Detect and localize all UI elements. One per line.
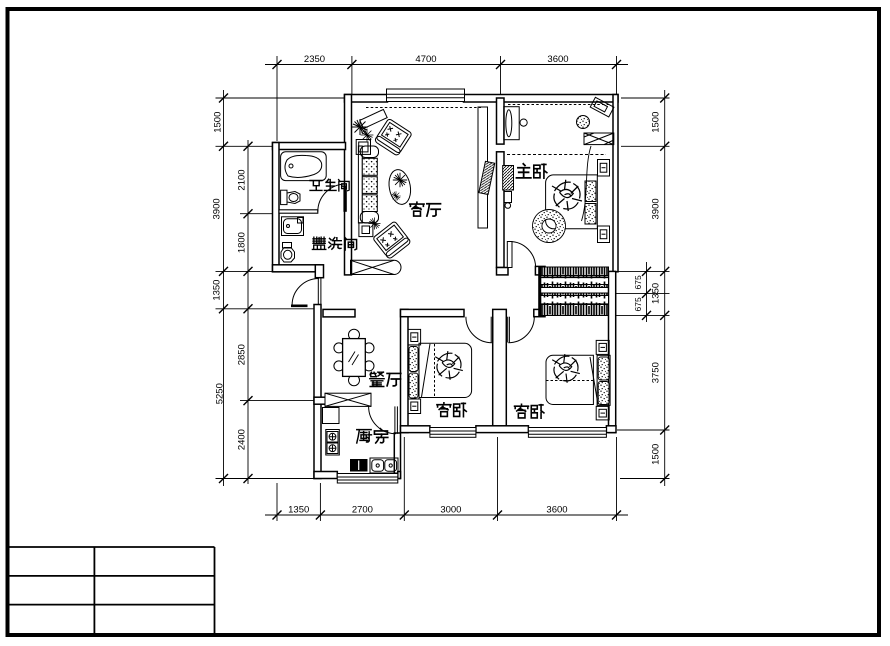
- svg-text:3900: 3900: [651, 198, 662, 219]
- svg-text:1500: 1500: [651, 444, 662, 465]
- svg-text:1500: 1500: [213, 112, 224, 133]
- svg-text:675: 675: [633, 275, 643, 289]
- svg-text:1500: 1500: [651, 112, 662, 133]
- svg-text:2400: 2400: [237, 429, 248, 450]
- svg-text:3750: 3750: [651, 362, 662, 383]
- svg-text:3000: 3000: [440, 505, 461, 516]
- svg-text:2700: 2700: [352, 505, 373, 516]
- svg-text:2850: 2850: [237, 344, 248, 365]
- svg-text:3900: 3900: [212, 198, 223, 219]
- svg-text:2100: 2100: [237, 169, 248, 190]
- svg-text:1350: 1350: [212, 280, 223, 301]
- svg-text:5250: 5250: [215, 383, 226, 404]
- svg-text:2350: 2350: [304, 54, 325, 65]
- svg-text:3600: 3600: [546, 505, 567, 516]
- svg-text:675: 675: [633, 297, 643, 311]
- svg-text:1350: 1350: [651, 283, 662, 304]
- svg-text:1350: 1350: [288, 505, 309, 516]
- svg-text:4700: 4700: [415, 54, 436, 65]
- svg-text:1800: 1800: [237, 232, 248, 253]
- svg-text:3600: 3600: [547, 54, 568, 65]
